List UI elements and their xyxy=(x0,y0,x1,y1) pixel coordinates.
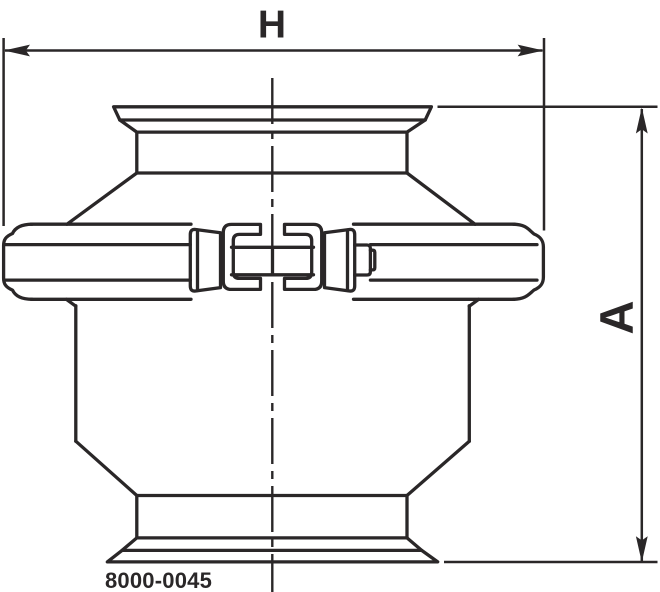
clamp-right-bracket xyxy=(285,224,322,289)
top-cone-flare xyxy=(67,173,475,224)
technical-drawing-page: H A 8000-0045 xyxy=(0,0,660,592)
part-number-label: 8000-0045 xyxy=(105,568,212,592)
valve-dimension-drawing: H A 8000-0045 xyxy=(0,0,660,592)
clamp-left-bracket xyxy=(223,224,260,289)
h-dimension-label: H xyxy=(258,4,286,47)
a-dimension-label: A xyxy=(590,301,643,335)
dimension-h: H xyxy=(4,4,544,231)
clamp-bolt-lines xyxy=(232,247,314,274)
clamp-band xyxy=(4,224,544,299)
clamp-right-lug xyxy=(325,229,355,291)
clamp-bolt-boss xyxy=(355,245,371,275)
clamp-right-end-cap xyxy=(514,224,544,299)
clamp-left-lug xyxy=(190,229,220,291)
clamp-left-end-cap xyxy=(4,224,32,299)
